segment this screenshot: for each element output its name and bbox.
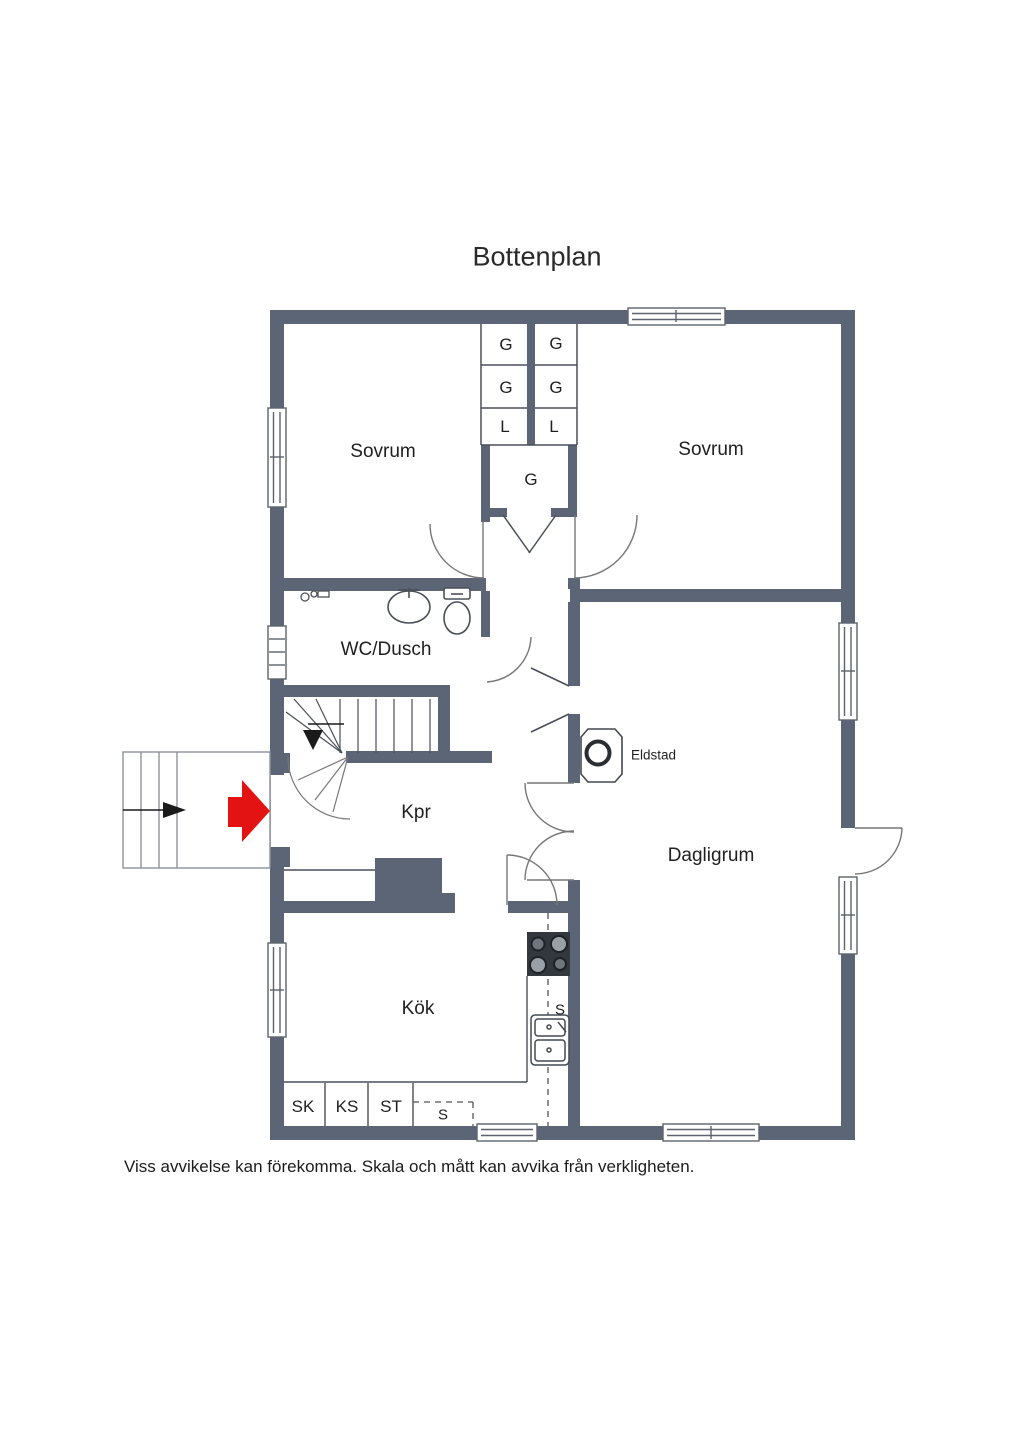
closet-label-hall: G [524,470,537,490]
room-label-sovrum-left: Sovrum [350,441,415,463]
stair-direction-arrow-icon [303,730,323,750]
window [268,408,286,507]
fireplace-icon [581,729,622,782]
shower-mixer-icon [301,591,329,601]
door-arc [855,828,902,874]
room-label-kok: Kök [402,998,435,1020]
closet-label: L [500,417,509,437]
window [268,943,286,1037]
fireplace-label: Eldstad [631,748,676,763]
door-arc [574,515,637,578]
window [839,877,857,954]
window [628,308,725,325]
kitchen-unit-label-st: ST [380,1097,402,1117]
floorplan-svg [0,0,1024,1448]
kitchen-unit-label-sk: SK [292,1097,315,1117]
door-arc [525,783,574,832]
kitchen-sink-icon [531,1015,569,1065]
page-title: Bottenplan [472,242,601,273]
closet-label: G [499,335,512,355]
disclaimer-text: Viss avvikelse kan förekomma. Skala och … [124,1157,694,1177]
stove-icon [527,932,570,976]
closet-label: L [549,417,558,437]
room-label-dagligrum: Dagligrum [668,845,755,867]
door-arc [487,637,531,682]
chimney-block [375,858,442,902]
room-label-sovrum-right: Sovrum [678,439,743,461]
toilet-icon [444,588,470,634]
kitchen-unit-label-s: S [438,1107,448,1124]
window [477,1124,537,1141]
sink-icon [388,588,430,623]
closet-label: G [499,378,512,398]
sink-label: S [555,1002,565,1019]
window [663,1124,759,1141]
closet-label: G [549,378,562,398]
window [268,626,286,679]
door-arc [525,831,574,880]
door-arc [430,524,484,578]
room-label-kpr: Kpr [401,802,431,824]
window [839,623,857,720]
floorplan-page: Bottenplan Sovrum Sovrum WC/Dusch Kpr Da… [0,0,1024,1448]
closet-label: G [549,334,562,354]
wc-fixtures [301,588,470,634]
room-label-wc-dusch: WC/Dusch [341,639,432,661]
kitchen-unit-label-ks: KS [336,1097,359,1117]
